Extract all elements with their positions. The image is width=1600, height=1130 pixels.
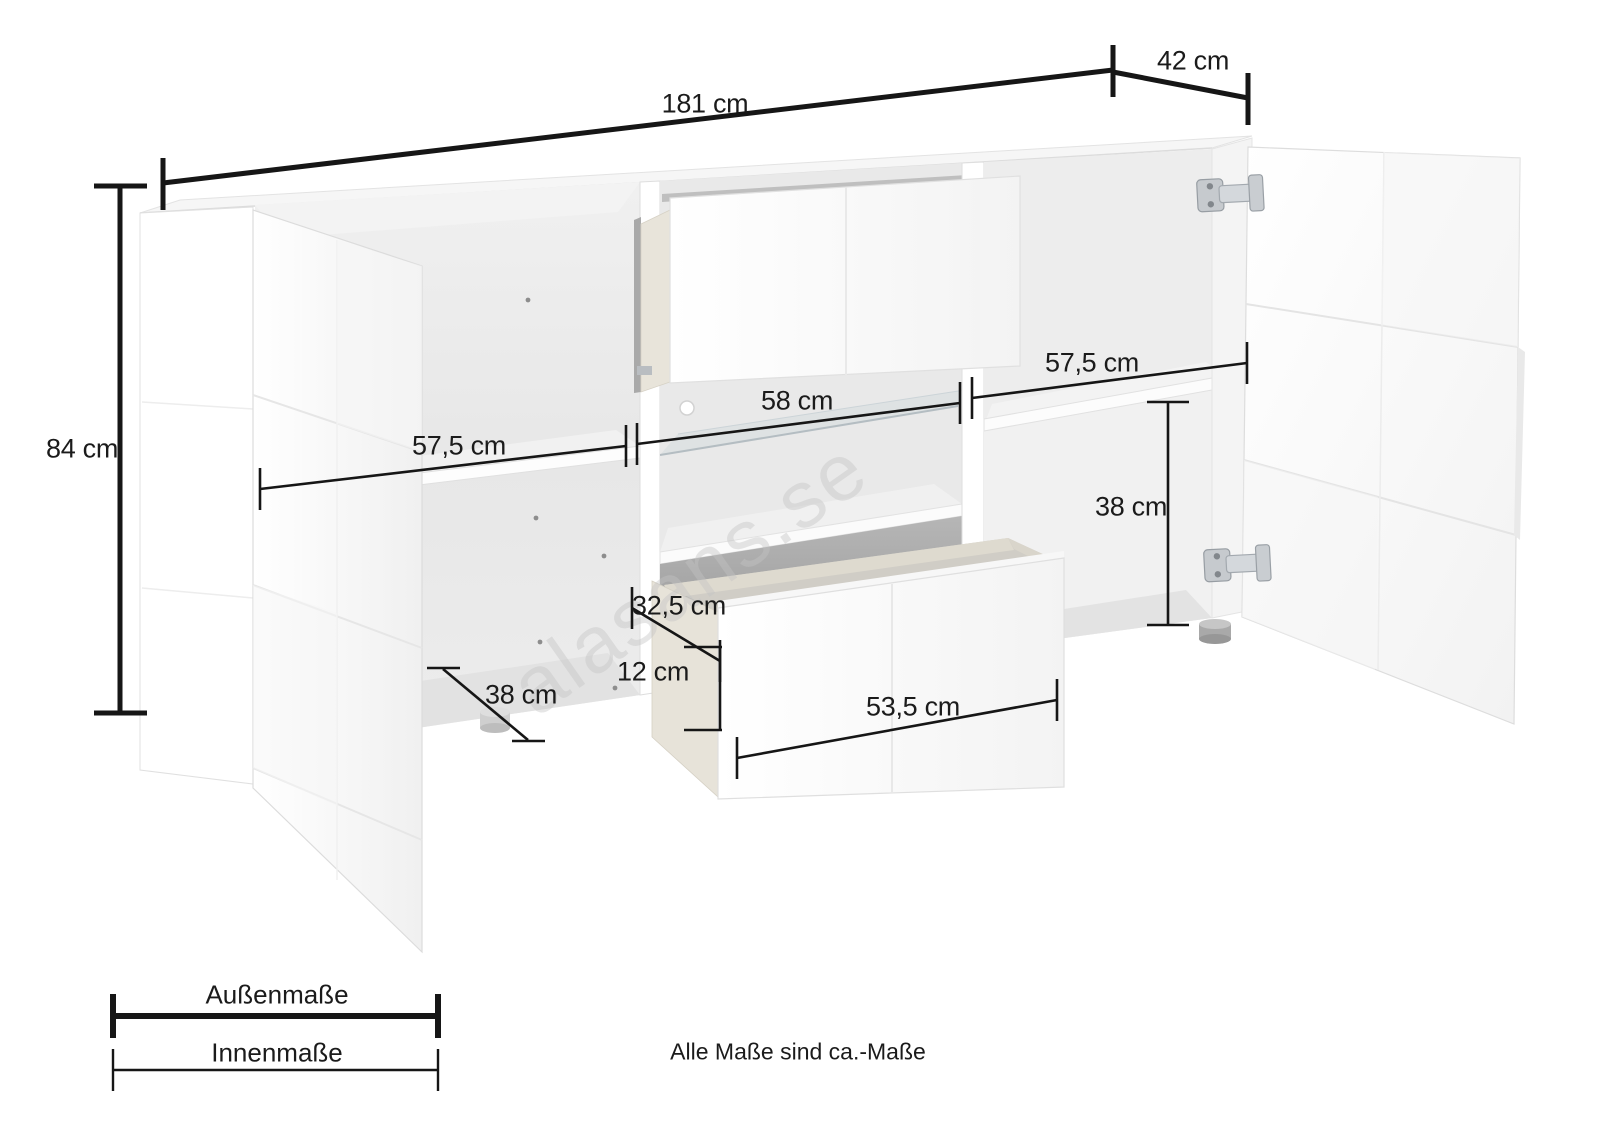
dim-left-width-label: 57,5 cm	[412, 431, 506, 462]
dimension-diagram: alasans.se	[0, 0, 1600, 1130]
dim-compartment-depth-label: 38 cm	[485, 680, 557, 711]
left-side-panel	[140, 207, 253, 784]
dim-drawer-height-label: 12 cm	[617, 657, 689, 688]
right-door-open	[1242, 147, 1525, 724]
dim-drawer-depth-label: 32,5 cm	[632, 591, 726, 622]
foot-right	[1199, 619, 1231, 644]
dim-total-height-label: 84 cm	[46, 434, 118, 465]
led-spot	[680, 401, 694, 415]
dim-drawer-width-label: 53,5 cm	[866, 692, 960, 723]
measure-note: Alle Maße sind ca.-Maße	[670, 1039, 926, 1066]
dim-total-depth-label: 42 cm	[1157, 46, 1229, 77]
dim-total-width-label: 181 cm	[662, 89, 749, 120]
dim-middle-width-label: 58 cm	[761, 386, 833, 417]
legend-inner-label: Innenmaße	[211, 1038, 343, 1069]
drawer-runner	[637, 366, 652, 375]
diagram-canvas: alasans.se	[0, 0, 1600, 1130]
top-drawer-open	[634, 176, 1020, 393]
dim-right-width-label: 57,5 cm	[1045, 348, 1139, 379]
dim-right-height-label: 38 cm	[1095, 492, 1167, 523]
left-door-open	[253, 210, 422, 952]
sideboard-illustration	[140, 136, 1525, 952]
legend-outer-label: Außenmaße	[205, 980, 348, 1011]
